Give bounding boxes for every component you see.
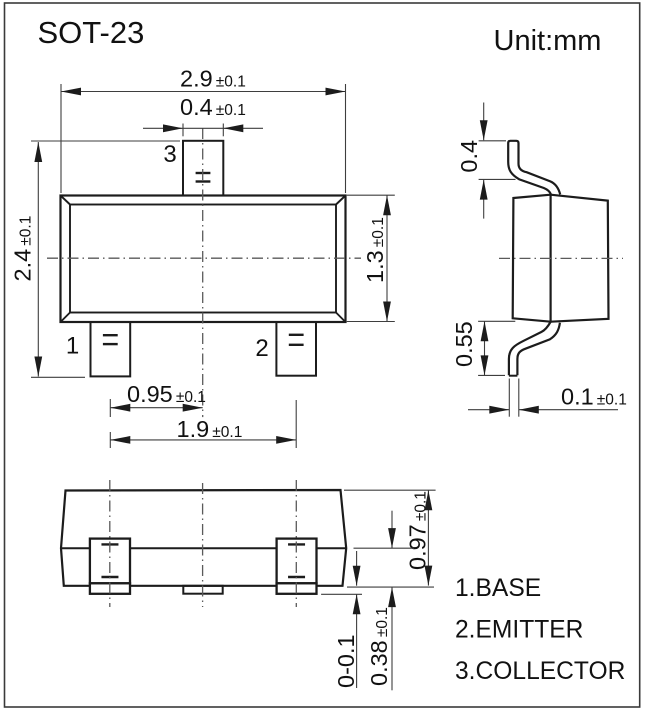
svg-text:0-0.1: 0-0.1 [333, 634, 359, 688]
svg-text:1.BASE: 1.BASE [455, 575, 541, 602]
svg-text:1: 1 [66, 332, 79, 359]
svg-text:2.EMITTER: 2.EMITTER [455, 616, 583, 643]
svg-text:SOT-23: SOT-23 [38, 15, 145, 50]
svg-text:0.55: 0.55 [451, 321, 477, 367]
svg-text:3.COLLECTOR: 3.COLLECTOR [455, 658, 625, 685]
svg-text:Unit:mm: Unit:mm [494, 25, 602, 57]
svg-text:0.4: 0.4 [456, 140, 482, 173]
svg-text:3: 3 [163, 141, 176, 168]
svg-text:2: 2 [255, 335, 268, 362]
